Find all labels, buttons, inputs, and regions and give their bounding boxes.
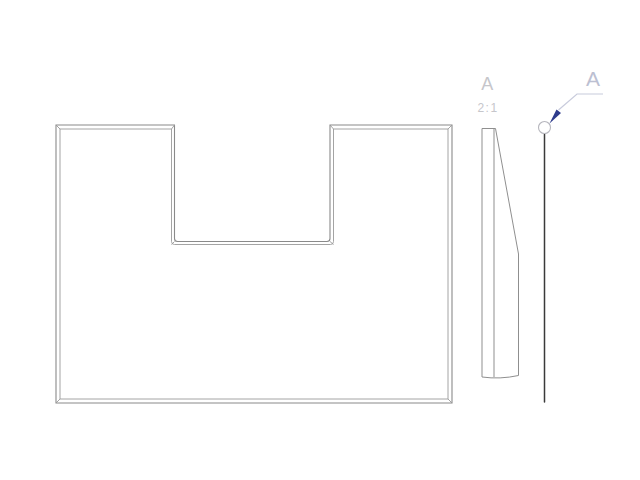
- section-cut-annotation[interactable]: A: [539, 67, 604, 403]
- plate-front-view[interactable]: [56, 125, 452, 403]
- section-cut-label[interactable]: A: [586, 67, 600, 90]
- leader-line: [559, 94, 604, 110]
- leader-arrowhead-icon: [550, 110, 562, 124]
- profile-side-view[interactable]: [482, 129, 519, 378]
- cad-drawing-sheet: A 2:1 A: [0, 0, 640, 480]
- plate-inner-edge-outline[interactable]: [60, 129, 448, 399]
- profile-outline[interactable]: [482, 129, 519, 378]
- section-view-annotation[interactable]: A 2:1: [477, 74, 498, 116]
- section-cut-endpoint-circle[interactable]: [539, 122, 551, 134]
- drawing-canvas: A 2:1 A: [0, 0, 640, 480]
- plate-corner-miter-lines: [56, 125, 452, 403]
- section-view-label[interactable]: A: [481, 74, 494, 94]
- section-view-scale[interactable]: 2:1: [477, 101, 498, 115]
- plate-outer-outline[interactable]: [56, 125, 452, 403]
